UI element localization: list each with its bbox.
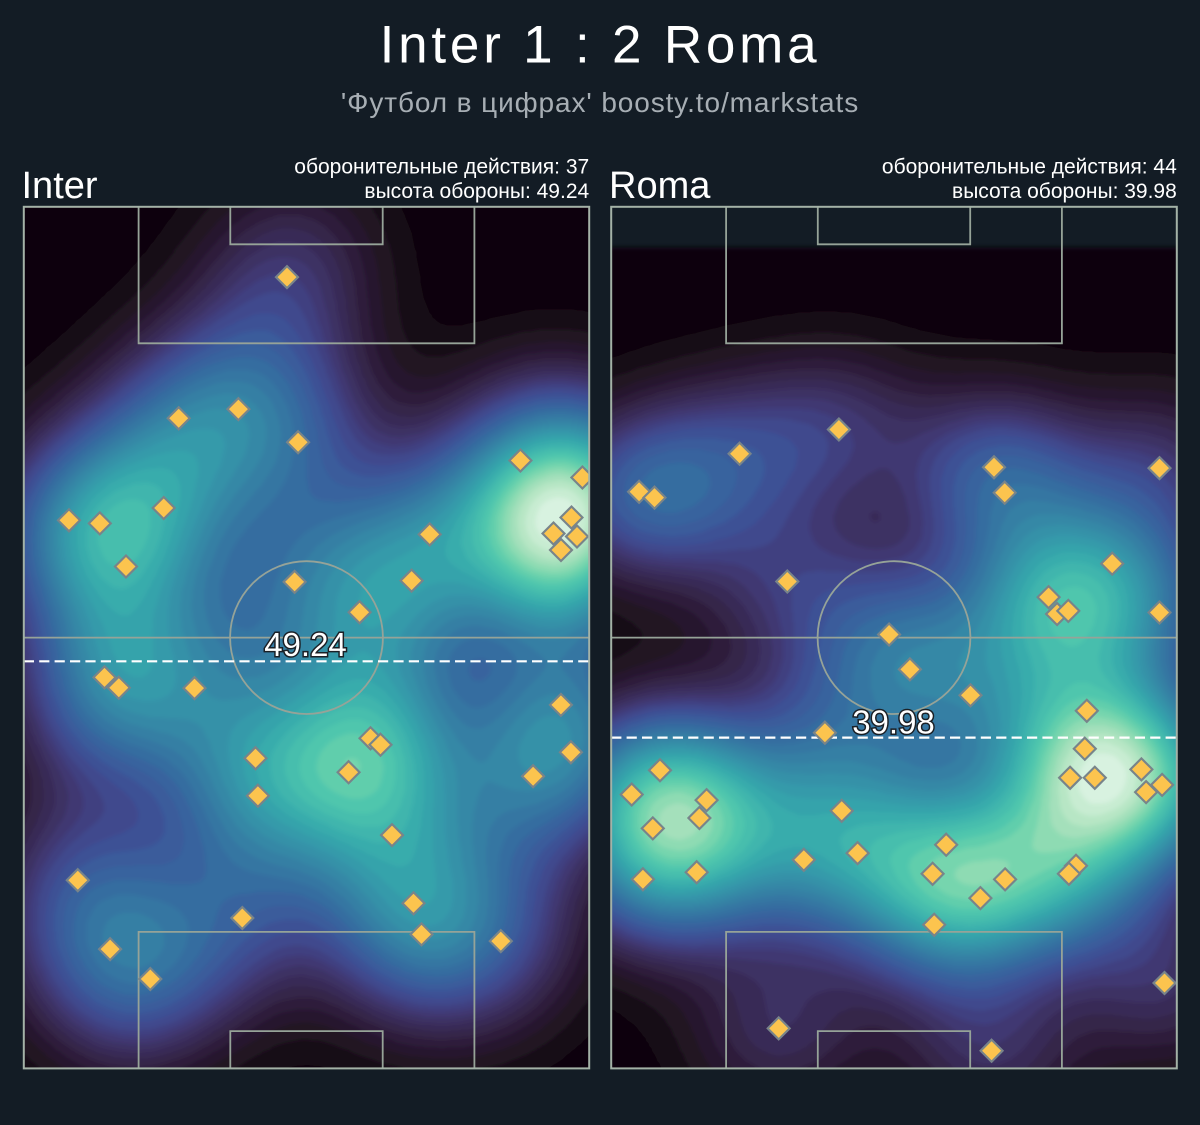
svg-text:высота обороны: 49.24: высота обороны: 49.24 [364, 180, 589, 203]
svg-text:Inter 1 : 2 Roma: Inter 1 : 2 Roma [380, 16, 821, 75]
svg-text:39.98: 39.98 [852, 704, 935, 741]
svg-text:'Футбол в цифрах' boosty.to/ma: 'Футбол в цифрах' boosty.to/markstats [341, 87, 859, 118]
svg-text:Inter: Inter [22, 165, 98, 207]
svg-text:оборонительные действия: 44: оборонительные действия: 44 [882, 156, 1177, 179]
svg-text:49.24: 49.24 [264, 626, 347, 663]
svg-text:высота обороны: 39.98: высота обороны: 39.98 [952, 180, 1177, 203]
svg-text:оборонительные действия: 37: оборонительные действия: 37 [294, 156, 589, 179]
svg-text:Roma: Roma [609, 165, 711, 207]
